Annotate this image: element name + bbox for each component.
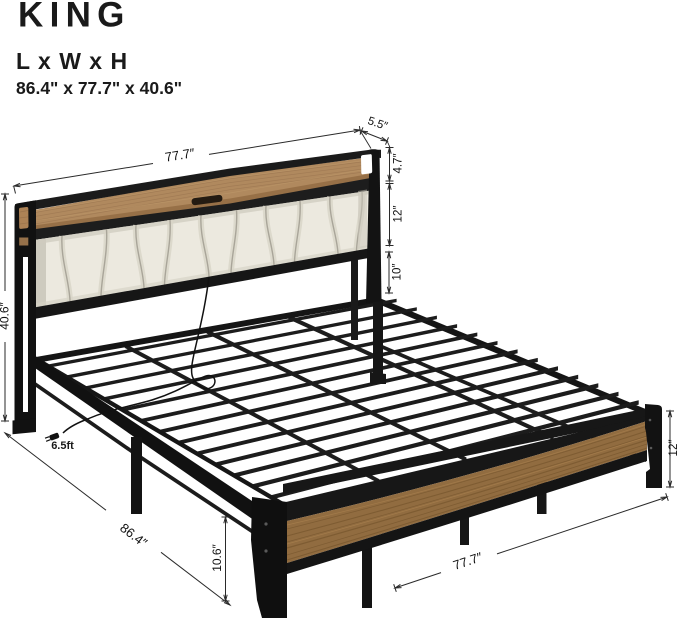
svg-text:12″: 12″ (393, 206, 405, 223)
svg-text:4.7″: 4.7″ (393, 153, 405, 173)
svg-text:KING: KING (18, 0, 131, 35)
svg-text:10.6″: 10.6″ (210, 543, 224, 571)
svg-text:40.6″: 40.6″ (0, 301, 12, 329)
svg-text:L x W x H: L x W x H (16, 48, 128, 74)
svg-text:10″: 10″ (392, 264, 404, 281)
svg-text:86.4" x 77.7" x 40.6": 86.4" x 77.7" x 40.6" (16, 78, 182, 98)
svg-text:12″: 12″ (668, 440, 679, 457)
svg-text:6.5ft: 6.5ft (51, 440, 74, 452)
